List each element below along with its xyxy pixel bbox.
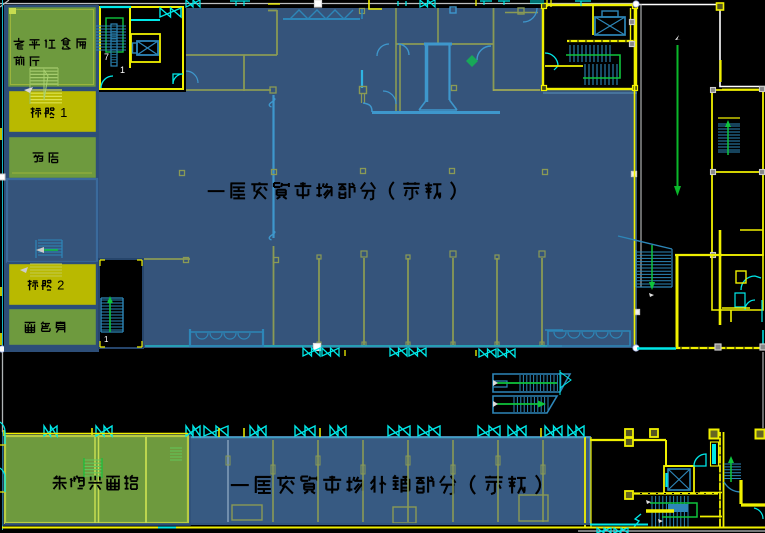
svg-text:2: 2 <box>57 278 64 293</box>
svg-text:7: 7 <box>104 52 109 62</box>
svg-text:1: 1 <box>60 105 67 120</box>
svg-text:1: 1 <box>120 65 125 75</box>
svg-text:1: 1 <box>104 335 109 344</box>
